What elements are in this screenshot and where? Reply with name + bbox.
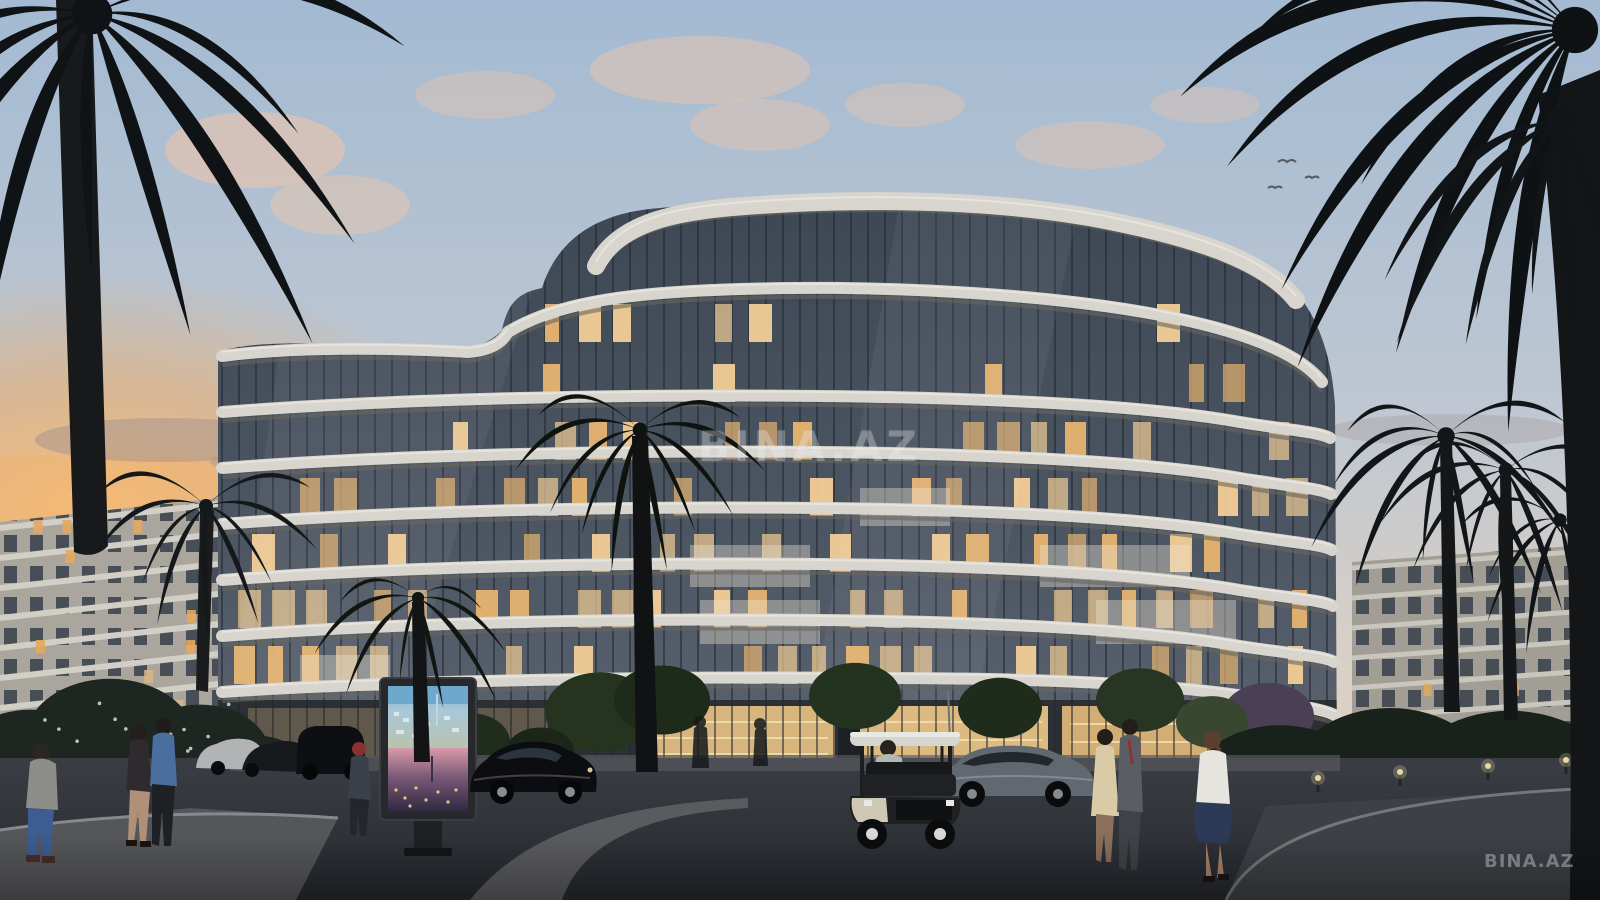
bottom-vignette [0, 835, 1600, 900]
watermark-center: BINA.AZ [698, 422, 918, 471]
scene-architectural-render: BINA.AZ BINA.AZ [0, 0, 1600, 900]
silhouette-figure-2 [753, 718, 768, 766]
watermark-corner: BINA.AZ [1484, 851, 1575, 872]
